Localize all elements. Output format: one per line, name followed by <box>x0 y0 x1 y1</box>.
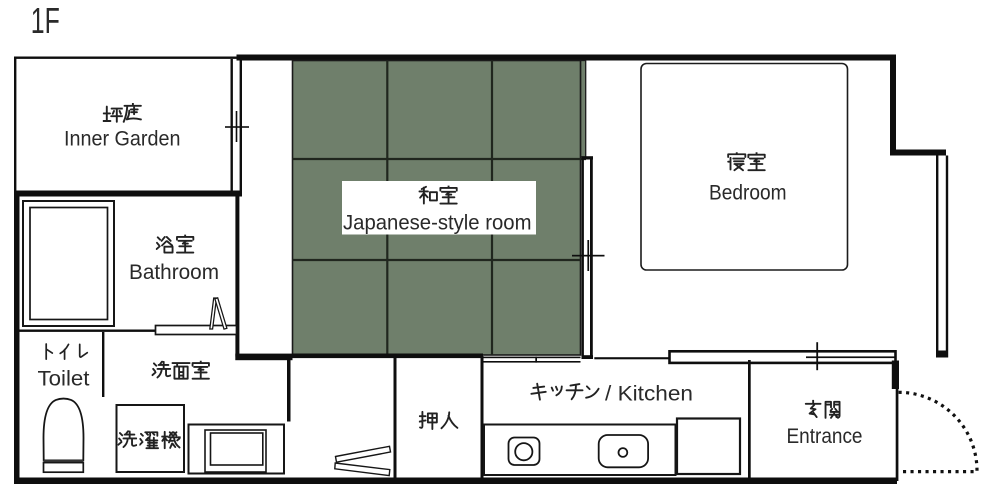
svg-text:Toilet: Toilet <box>38 368 90 391</box>
svg-text:1F: 1F <box>31 0 60 41</box>
svg-text:Inner Garden: Inner Garden <box>64 128 181 151</box>
svg-text:Bedroom: Bedroom <box>709 182 787 205</box>
svg-text:Entrance: Entrance <box>787 425 863 448</box>
svg-text:/ Kitchen: / Kitchen <box>605 383 693 406</box>
svg-text:Japanese-style room: Japanese-style room <box>343 211 532 235</box>
svg-text:Bathroom: Bathroom <box>129 261 219 284</box>
